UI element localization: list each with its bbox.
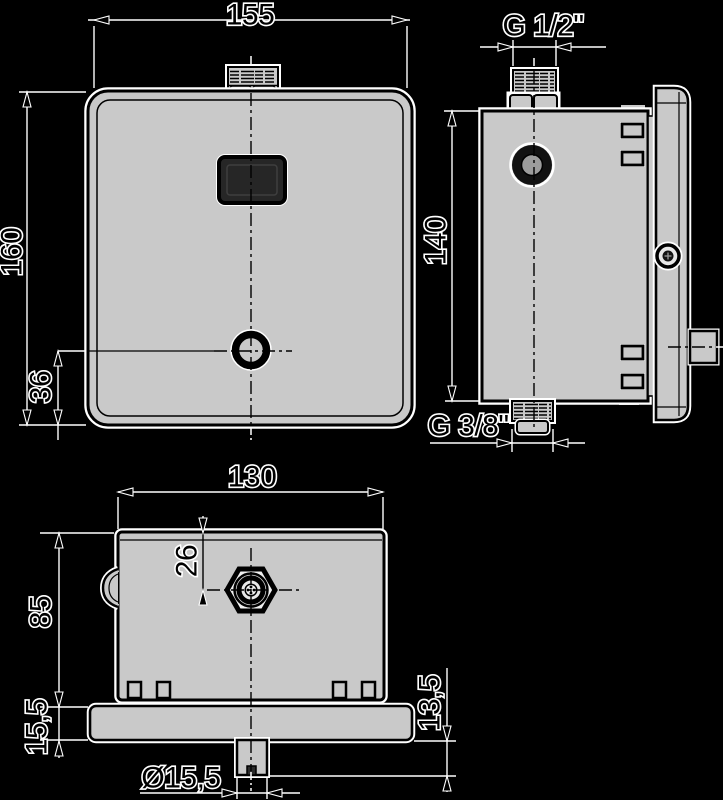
- dim-label-front-height: 160: [0, 228, 29, 277]
- front-view: [88, 56, 412, 441]
- dim-label-body-depth: 85: [25, 596, 58, 628]
- dim-label-side-height: 140: [420, 217, 453, 266]
- flush-spout: [237, 740, 267, 775]
- sensor-window: [219, 157, 285, 203]
- side-view: [482, 58, 723, 433]
- front-panel: [88, 91, 412, 425]
- dim-label-plate-thickness: 15,5: [21, 699, 54, 755]
- bottom-view: [90, 531, 412, 791]
- technical-drawing-canvas: 155 160 36 G 1/2" 140 G 3/8" 130 85 26 1…: [0, 0, 723, 800]
- fixing-screw: [655, 243, 682, 270]
- dim-label-front-width: 155: [226, 0, 275, 32]
- dim-label-top-thread: G 1/2": [502, 10, 583, 43]
- dim-label-spout-protrusion: 13,5: [414, 675, 447, 731]
- dim-label-body-width: 130: [228, 461, 277, 494]
- side-port: [511, 144, 554, 187]
- dim-label-spout-diameter: Ø15,5: [141, 762, 220, 795]
- technical-drawing: 155 160 36 G 1/2" 140 G 3/8" 130 85 26 1…: [0, 0, 723, 800]
- dim-label-button-offset: 36: [25, 371, 58, 403]
- dim-label-connector-offset: 26: [171, 545, 204, 577]
- outlet-thread: [512, 401, 553, 433]
- dim-label-bottom-thread: G 3/8": [427, 410, 508, 443]
